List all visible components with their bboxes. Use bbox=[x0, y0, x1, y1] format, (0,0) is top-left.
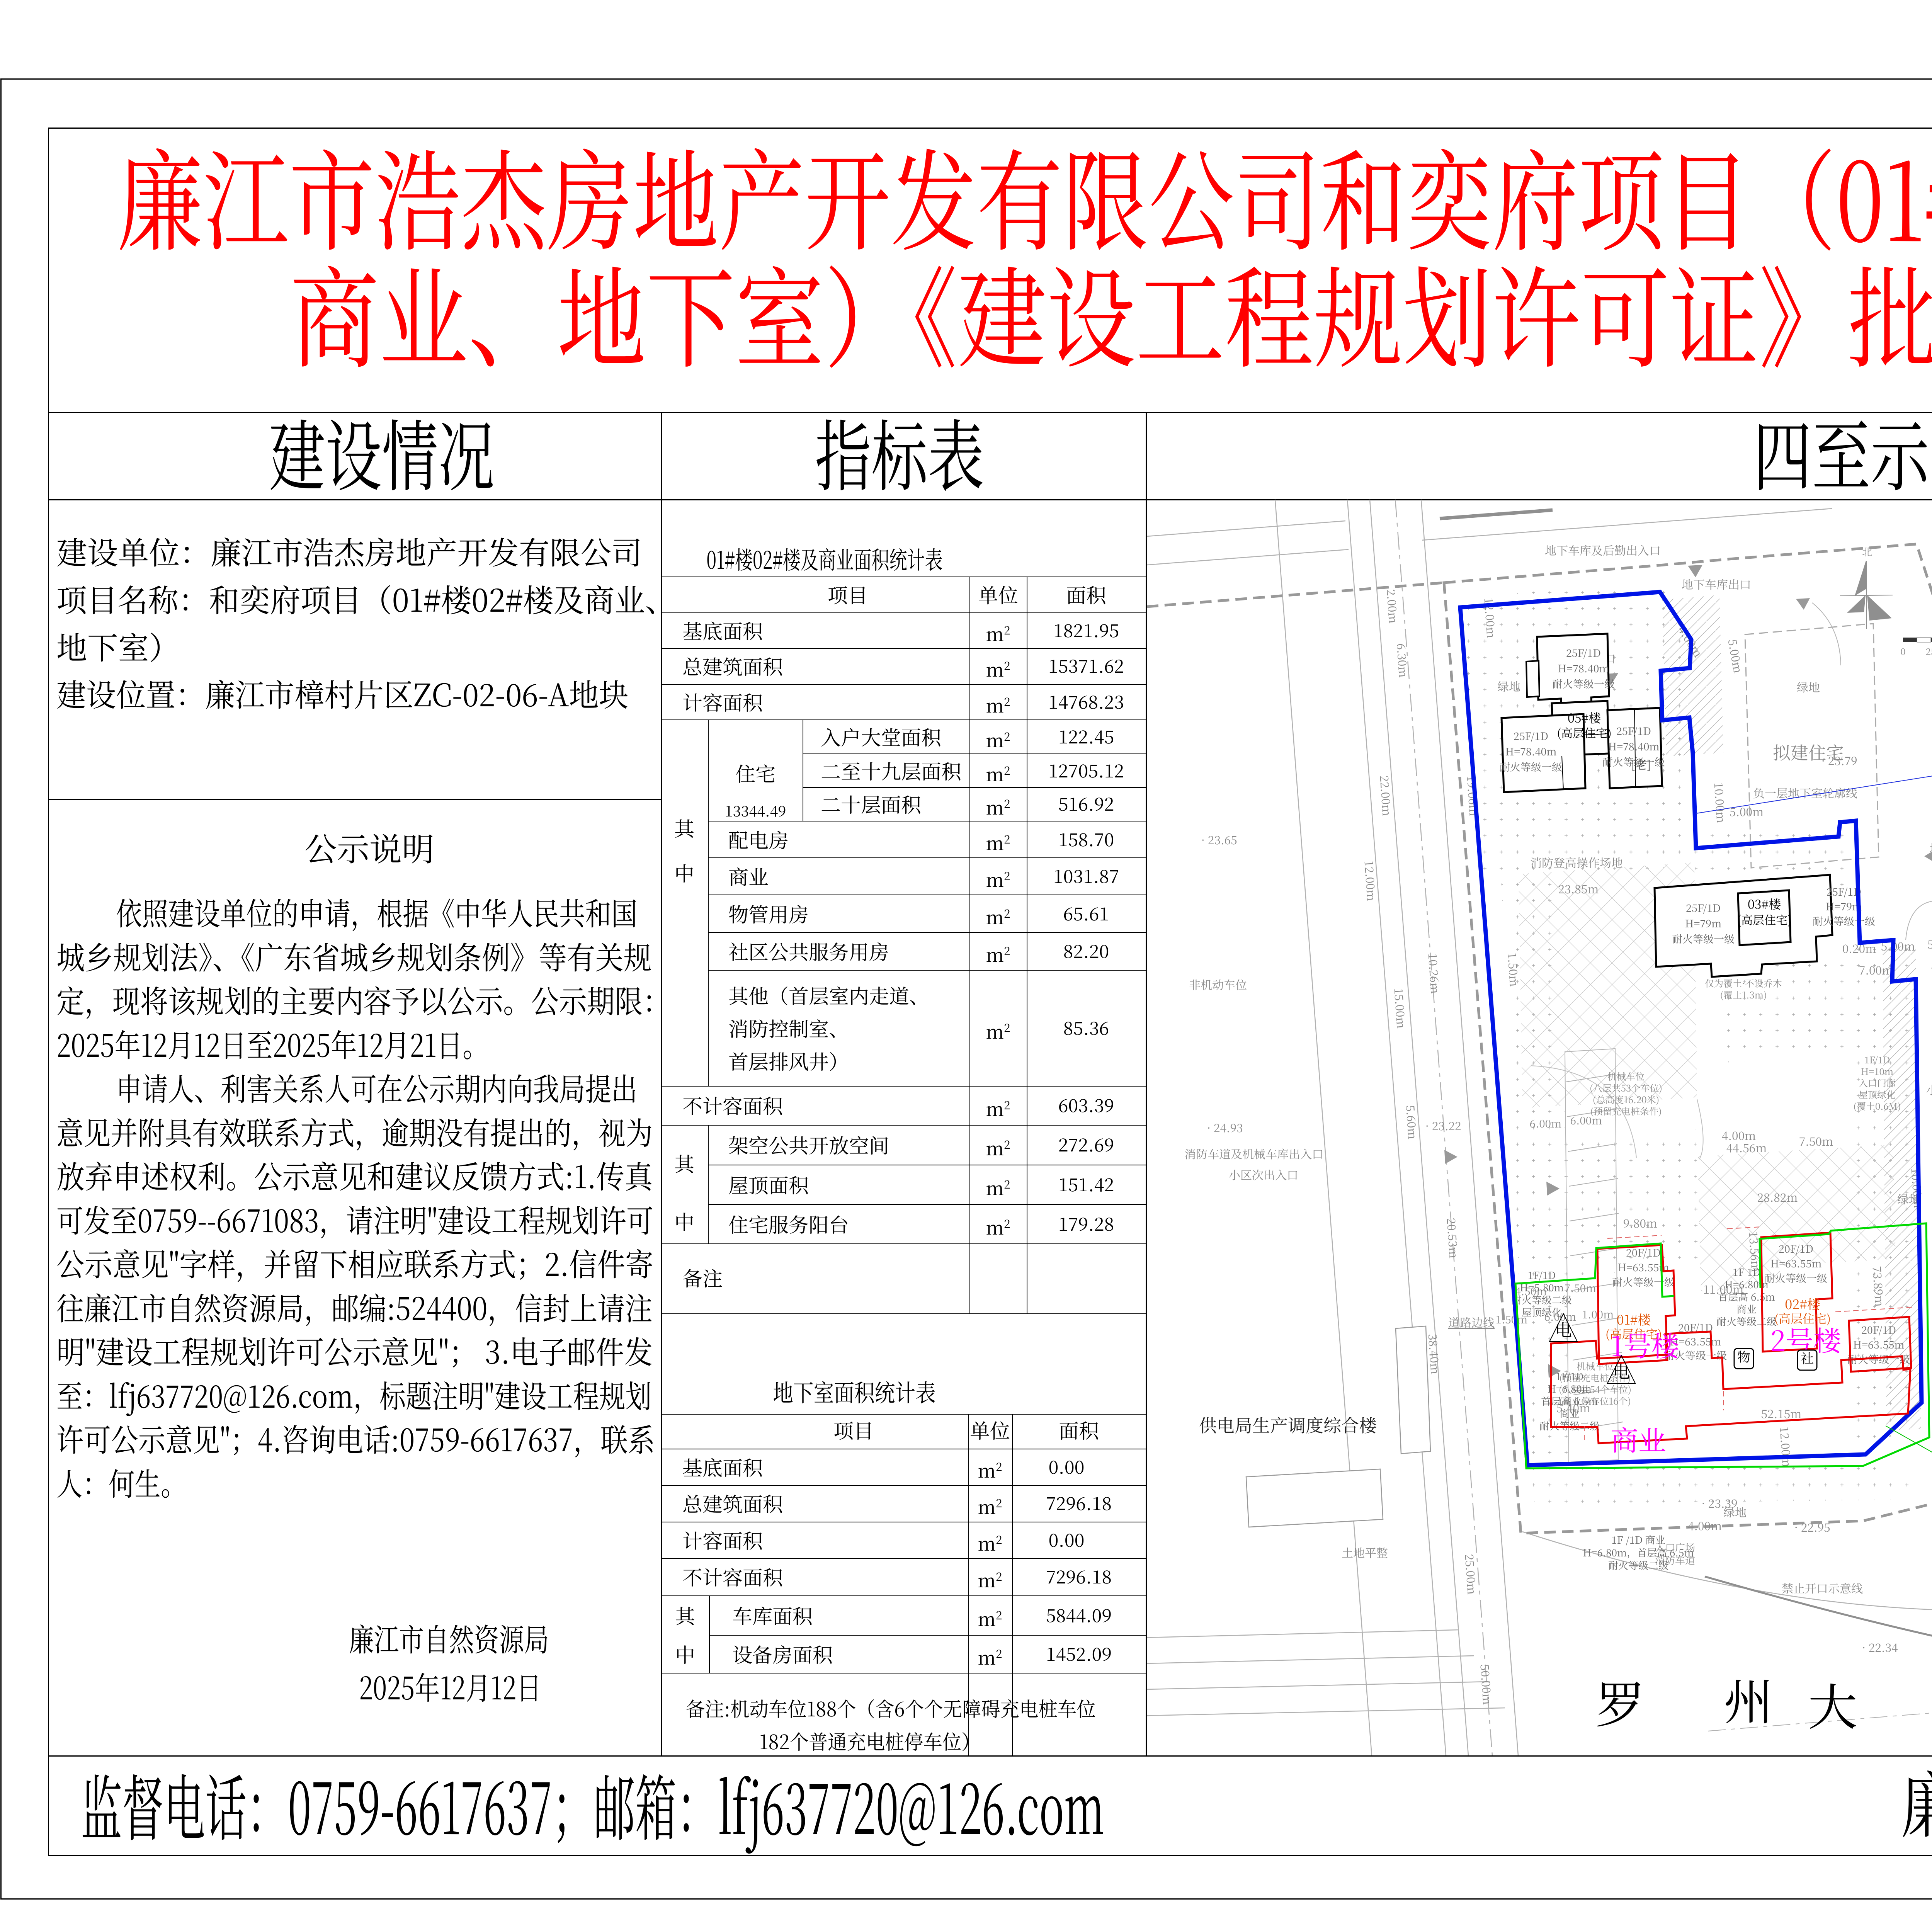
svg-text:H=78.40m: H=78.40m bbox=[1608, 738, 1659, 753]
svg-text:5.00m: 5.00m bbox=[1725, 638, 1747, 674]
svg-text:· 23.22: · 23.22 bbox=[1425, 1117, 1461, 1134]
svg-text:4.00m: 4.00m bbox=[1722, 1126, 1756, 1143]
svg-text:6.00m: 6.00m bbox=[1570, 1112, 1602, 1128]
svg-text:25F/1D: 25F/1D bbox=[1514, 728, 1548, 743]
svg-text:25.00m: 25.00m bbox=[1461, 1553, 1481, 1595]
svg-text:商业: 商业 bbox=[1611, 1418, 1666, 1459]
svg-text:耐火等级一级: 耐火等级一级 bbox=[1765, 1270, 1827, 1285]
svg-text:供电局生产调度综合楼: 供电局生产调度综合楼 bbox=[1199, 1412, 1377, 1437]
svg-text:20F/1D: 20F/1D bbox=[1779, 1241, 1813, 1256]
svg-text:道路边线: 道路边线 bbox=[1448, 1313, 1495, 1330]
svg-text:物: 物 bbox=[1737, 1347, 1750, 1366]
svg-text:9.80m: 9.80m bbox=[1623, 1214, 1658, 1231]
svg-text:12.00m: 12.00m bbox=[1361, 860, 1381, 901]
svg-text:H=79m: H=79m bbox=[1685, 915, 1722, 930]
svg-text:耐火等级一级: 耐火等级一级 bbox=[1552, 676, 1615, 691]
svg-text:(覆土1.3m): (覆土1.3m) bbox=[1720, 988, 1767, 1001]
svg-text:5.00m: 5.00m bbox=[1927, 935, 1932, 952]
svg-text:1.50m: 1.50m bbox=[1504, 952, 1524, 987]
svg-text:禁止开口示意线: 禁止开口示意线 bbox=[1782, 1579, 1863, 1596]
svg-text:耐火等级二级: 耐火等级二级 bbox=[1539, 1418, 1600, 1433]
svg-text:北: 北 bbox=[1862, 544, 1872, 559]
svg-text:73.89m: 73.89m bbox=[1869, 1265, 1889, 1307]
svg-text:· 23.65: · 23.65 bbox=[1201, 831, 1237, 848]
svg-text:耐火等级二级: 耐火等级二级 bbox=[1716, 1314, 1777, 1328]
svg-text:25F/1D: 25F/1D bbox=[1686, 900, 1721, 915]
svg-text:电: 电 bbox=[1613, 1358, 1630, 1383]
svg-text:2.00m: 2.00m bbox=[1383, 588, 1403, 624]
svg-text:耐火等级一级: 耐火等级一级 bbox=[1813, 913, 1875, 928]
svg-text:大: 大 bbox=[1808, 1668, 1857, 1739]
svg-text:7.50m: 7.50m bbox=[1799, 1132, 1833, 1149]
svg-text:03#楼: 03#楼 bbox=[1748, 895, 1781, 913]
svg-text:土地平整: 土地平整 bbox=[1342, 1544, 1388, 1561]
svg-text:· 24.93: · 24.93 bbox=[1207, 1119, 1243, 1136]
svg-text:H=63.55m: H=63.55m bbox=[1853, 1337, 1904, 1352]
svg-text:25: 25 bbox=[1926, 644, 1932, 658]
svg-text:耐火等级一级: 耐火等级一级 bbox=[1500, 759, 1562, 774]
svg-text:6.30m: 6.30m bbox=[1393, 643, 1413, 678]
svg-text:20F/1D: 20F/1D bbox=[1861, 1322, 1896, 1337]
svg-text:地下车库及后勤出入口: 地下车库及后勤出入口 bbox=[1545, 541, 1661, 558]
svg-text:5.60m: 5.60m bbox=[1403, 1104, 1422, 1139]
svg-text:耐火等级一级: 耐火等级一级 bbox=[1612, 1274, 1675, 1289]
svg-text:地下车库出口: 地下车库出口 bbox=[1682, 575, 1751, 592]
svg-text:(高层住宅): (高层住宅) bbox=[1557, 724, 1612, 741]
svg-text:H=78.40m: H=78.40m bbox=[1505, 743, 1556, 759]
svg-text:12.00m: 12.00m bbox=[1776, 1426, 1796, 1468]
svg-text:耐火等级二级: 耐火等级二级 bbox=[1608, 1558, 1668, 1572]
svg-text:4.00m: 4.00m bbox=[1688, 1517, 1722, 1534]
svg-text:1F /1D 商业: 1F /1D 商业 bbox=[1611, 1532, 1665, 1547]
svg-text:社: 社 bbox=[1801, 1348, 1814, 1367]
svg-text:H=78.40m: H=78.40m bbox=[1558, 660, 1609, 675]
svg-text:绿地: 绿地 bbox=[1797, 678, 1820, 695]
svg-text:· 22.95: · 22.95 bbox=[1794, 1518, 1830, 1535]
svg-text:6.00m: 6.00m bbox=[1530, 1116, 1562, 1131]
svg-text:小区次出入口: 小区次出入口 bbox=[1229, 1166, 1298, 1183]
svg-text:绿地: 绿地 bbox=[1723, 1503, 1747, 1520]
svg-text:22.00m: 22.00m bbox=[1376, 775, 1396, 816]
svg-text:(覆土0.6M): (覆土0.6M) bbox=[1853, 1099, 1901, 1112]
svg-text:28.82m: 28.82m bbox=[1757, 1188, 1798, 1205]
svg-text:非机动车位: 非机动车位 bbox=[1189, 976, 1247, 993]
svg-text:州: 州 bbox=[1724, 1663, 1773, 1734]
svg-text:绿地: 绿地 bbox=[1497, 677, 1520, 694]
svg-text:(高层住宅): (高层住宅) bbox=[1737, 911, 1792, 928]
svg-text:25F/1D: 25F/1D bbox=[1616, 723, 1651, 738]
svg-text:23.85m: 23.85m bbox=[1558, 880, 1599, 897]
svg-text:20.53m: 20.53m bbox=[1443, 1217, 1463, 1259]
svg-text:H=6.80m，首层高 6.5m: H=6.80m，首层高 6.5m bbox=[1583, 1545, 1694, 1560]
svg-text:电: 电 bbox=[1555, 1316, 1572, 1341]
svg-text:负一层地下室轮廓线: 负一层地下室轮廓线 bbox=[1753, 784, 1857, 801]
svg-text:0: 0 bbox=[1900, 644, 1905, 658]
svg-text:耐火等级一级: 耐火等级一级 bbox=[1602, 754, 1665, 769]
svg-text:拟建住宅: 拟建住宅 bbox=[1773, 739, 1844, 765]
svg-text:罗: 罗 bbox=[1595, 1666, 1645, 1737]
svg-text:消防登高操作场地: 消防登高操作场地 bbox=[1530, 854, 1623, 871]
svg-text:25F/1D: 25F/1D bbox=[1566, 645, 1601, 660]
svg-text:50.00m: 50.00m bbox=[1477, 1663, 1497, 1705]
svg-text:10.26m: 10.26m bbox=[1425, 952, 1444, 994]
svg-text:地下车库入口: 地下车库入口 bbox=[1930, 839, 1932, 856]
svg-text:H=63.55m: H=63.55m bbox=[1770, 1255, 1821, 1270]
svg-text:· 22.34: · 22.34 bbox=[1862, 1638, 1898, 1655]
svg-text:7.00m: 7.00m bbox=[1859, 961, 1893, 978]
svg-text:10.00m: 10.00m bbox=[1711, 782, 1730, 823]
svg-text:38.40m: 38.40m bbox=[1425, 1333, 1444, 1375]
svg-text:15.00m: 15.00m bbox=[1391, 987, 1410, 1029]
svg-text:消防车道及机械车库出入口: 消防车道及机械车库出入口 bbox=[1184, 1145, 1323, 1162]
svg-text:耐火等级一级: 耐火等级一级 bbox=[1672, 931, 1735, 946]
svg-text:小区主出入口: 小区主出入口 bbox=[1926, 1081, 1932, 1098]
